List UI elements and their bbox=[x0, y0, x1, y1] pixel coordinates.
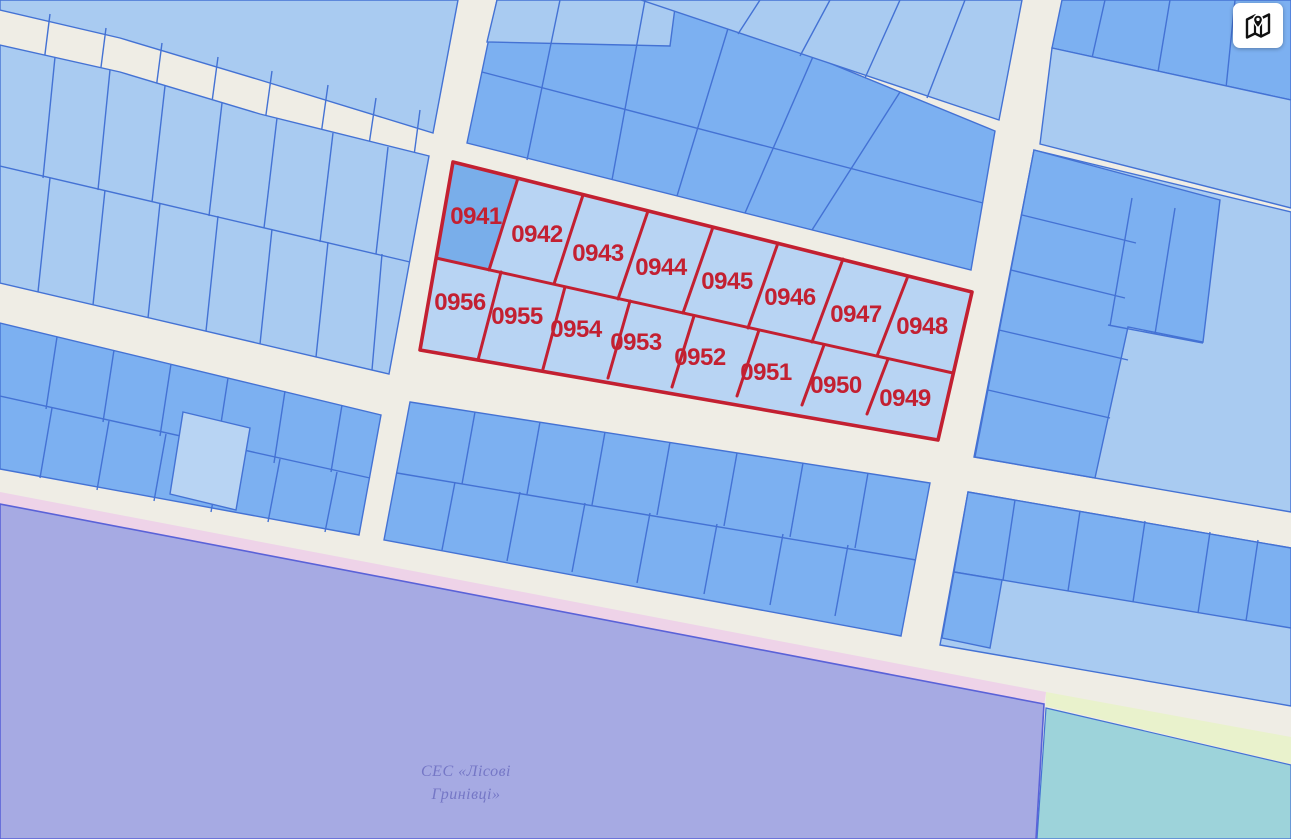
zone-label: Гринівці» bbox=[431, 786, 501, 803]
parcel-number-label[interactable]: 0955 bbox=[491, 303, 543, 330]
parcel-number-label[interactable]: 0950 bbox=[810, 372, 862, 399]
parcel-number-label[interactable]: 0947 bbox=[830, 301, 882, 328]
parcel-number-label[interactable]: 0944 bbox=[635, 254, 688, 281]
parcel-number-label[interactable]: 0945 bbox=[701, 268, 753, 295]
parcel-number-label[interactable]: 0952 bbox=[674, 344, 726, 371]
cadastral-map[interactable]: СЕС «Лісові Гринівці» 094 bbox=[0, 0, 1291, 839]
map-layers-button[interactable] bbox=[1233, 3, 1283, 48]
parcel-number-label[interactable]: 0943 bbox=[572, 240, 624, 267]
parcel-number-label[interactable]: 0949 bbox=[879, 385, 931, 412]
parcel-number-label[interactable]: 0953 bbox=[610, 329, 662, 356]
map-viewport[interactable]: СЕС «Лісові Гринівці» 094 bbox=[0, 0, 1291, 839]
parcel-number-label[interactable]: 0942 bbox=[511, 221, 563, 248]
parcel-number-label[interactable]: 0941 bbox=[450, 203, 502, 230]
parcel-number-label[interactable]: 0954 bbox=[550, 316, 603, 343]
map-pin-icon bbox=[1243, 11, 1273, 41]
zone-label: СЕС «Лісові bbox=[421, 763, 511, 780]
parcel-number-label[interactable]: 0956 bbox=[434, 289, 486, 316]
parcel-number-label[interactable]: 0948 bbox=[896, 313, 948, 340]
parcel-number-label[interactable]: 0946 bbox=[764, 284, 816, 311]
parcel-number-label[interactable]: 0951 bbox=[740, 359, 792, 386]
